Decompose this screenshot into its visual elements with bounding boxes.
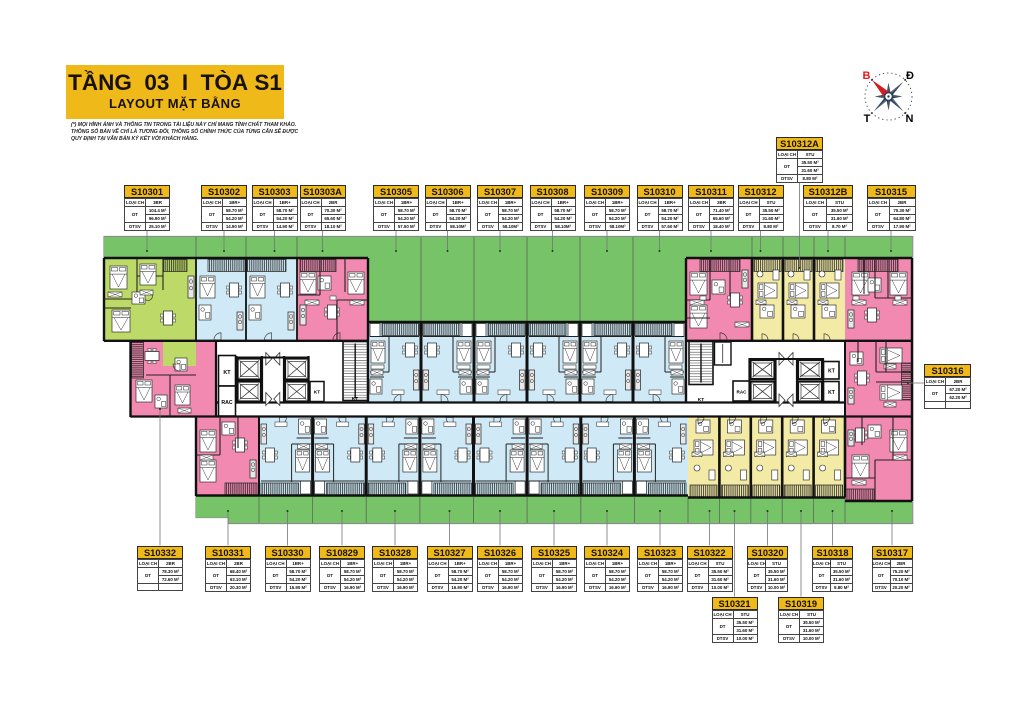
- svg-text:RAC: RAC: [737, 390, 748, 395]
- svg-text:KT: KT: [828, 390, 835, 396]
- svg-text:T: T: [864, 113, 871, 125]
- svg-text:B: B: [863, 70, 871, 82]
- svg-text:N: N: [906, 113, 914, 125]
- svg-text:RAC: RAC: [221, 400, 232, 406]
- svg-text:KT: KT: [223, 370, 231, 376]
- svg-text:KT: KT: [314, 390, 320, 396]
- svg-text:KT: KT: [828, 369, 835, 375]
- svg-text:KT: KT: [352, 396, 358, 402]
- svg-text:Đ: Đ: [906, 70, 914, 82]
- svg-text:KT: KT: [698, 397, 704, 403]
